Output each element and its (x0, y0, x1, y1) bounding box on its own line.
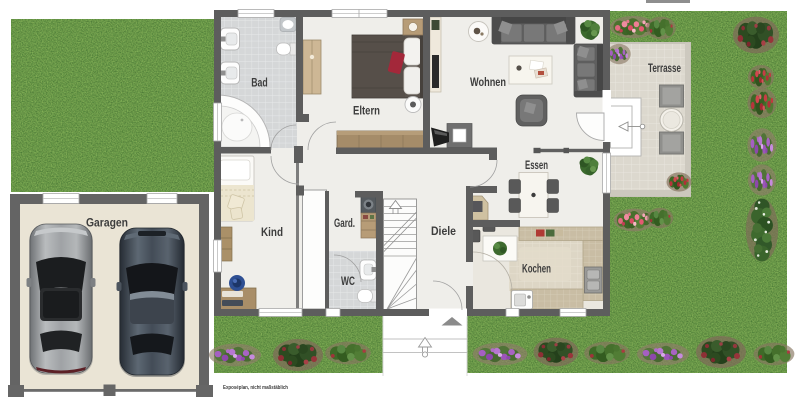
svg-text:Bad: Bad (251, 76, 268, 90)
svg-text:Diele: Diele (431, 224, 456, 238)
svg-text:Exposéplan, nicht maßstäblich: Exposéplan, nicht maßstäblich (223, 385, 288, 391)
svg-text:Kind: Kind (261, 225, 283, 239)
svg-text:Terrasse: Terrasse (648, 61, 681, 75)
svg-text:Eltern: Eltern (353, 104, 380, 118)
svg-text:Garagen: Garagen (86, 216, 128, 230)
svg-text:Gard.: Gard. (334, 216, 355, 230)
svg-text:WC: WC (341, 274, 355, 288)
svg-text:Essen: Essen (525, 158, 548, 172)
svg-text:Kochen: Kochen (522, 262, 551, 276)
svg-text:Wohnen: Wohnen (470, 75, 506, 89)
